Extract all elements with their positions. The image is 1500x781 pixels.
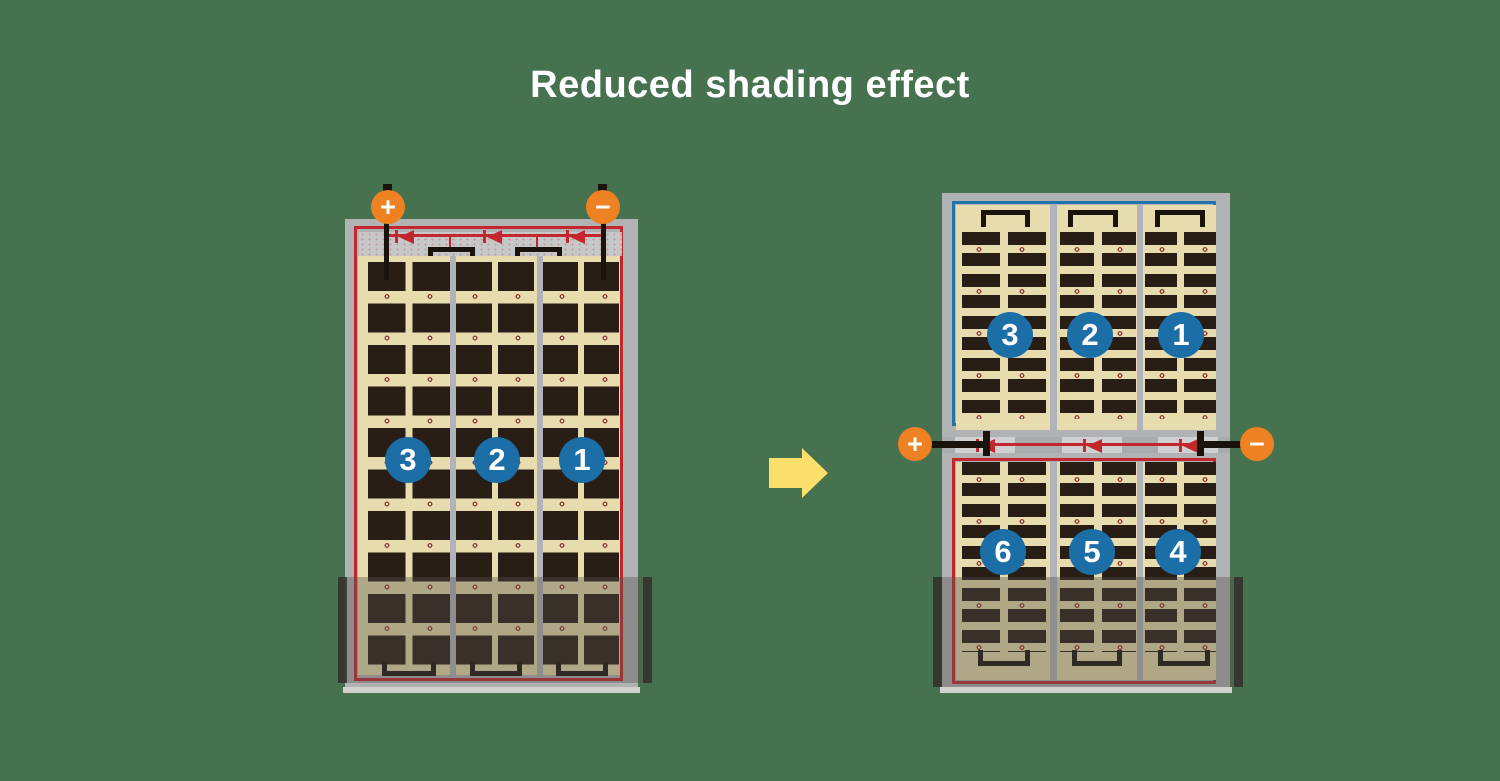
string-number-badge: 1 — [559, 437, 605, 483]
string-number-badge: 3 — [385, 437, 431, 483]
page-title: Reduced shading effect — [0, 64, 1500, 107]
transform-arrow-icon — [769, 448, 828, 498]
diode-triangle — [487, 230, 502, 244]
positive-terminal: + — [898, 427, 932, 461]
diode-bar — [395, 230, 398, 243]
positive-terminal: + — [371, 190, 405, 224]
busbar-top — [981, 210, 1030, 227]
wire-tap — [449, 237, 451, 247]
diode-triangle — [570, 230, 585, 244]
string-number-badge: 2 — [1067, 312, 1113, 358]
shade-overlay-right — [933, 577, 1243, 687]
bypass-diode-icon — [1179, 438, 1198, 453]
diode-bar — [1083, 439, 1086, 452]
shade-overlay-left — [338, 577, 652, 683]
diode-triangle — [399, 230, 414, 244]
module-frame-lip — [343, 687, 640, 693]
diode-triangle — [1087, 439, 1102, 453]
negative-terminal: − — [586, 190, 620, 224]
diagram-canvas: Reduced shading effect — [0, 0, 1500, 781]
busbar-top — [1068, 210, 1118, 227]
diode-bar — [1179, 439, 1182, 452]
bypass-diode-icon — [395, 229, 414, 244]
diode-bar — [483, 230, 486, 243]
arrow-body — [769, 458, 802, 488]
busbar-top — [1155, 210, 1205, 227]
terminal-lead — [1204, 441, 1242, 448]
bypass-diode-icon — [566, 229, 585, 244]
bypass-diode-icon — [1083, 438, 1102, 453]
terminal-lead — [930, 441, 986, 448]
string-number-badge: 6 — [980, 529, 1026, 575]
string-separator — [1050, 205, 1057, 430]
string-number-badge: 1 — [1158, 312, 1204, 358]
negative-terminal: − — [1240, 427, 1274, 461]
string-separator — [1137, 205, 1143, 430]
string-number-badge: 2 — [474, 437, 520, 483]
bypass-diode-icon — [483, 229, 502, 244]
module-frame-lip — [940, 687, 1232, 693]
lead-contact-bar — [983, 431, 990, 456]
string-number-badge: 5 — [1069, 529, 1115, 575]
diode-triangle — [1183, 439, 1198, 453]
arrow-tip — [802, 448, 828, 498]
lead-contact-bar — [1197, 431, 1204, 456]
wire-tap — [536, 237, 538, 247]
string-number-badge: 3 — [987, 312, 1033, 358]
string-number-badge: 4 — [1155, 529, 1201, 575]
diode-bar — [566, 230, 569, 243]
